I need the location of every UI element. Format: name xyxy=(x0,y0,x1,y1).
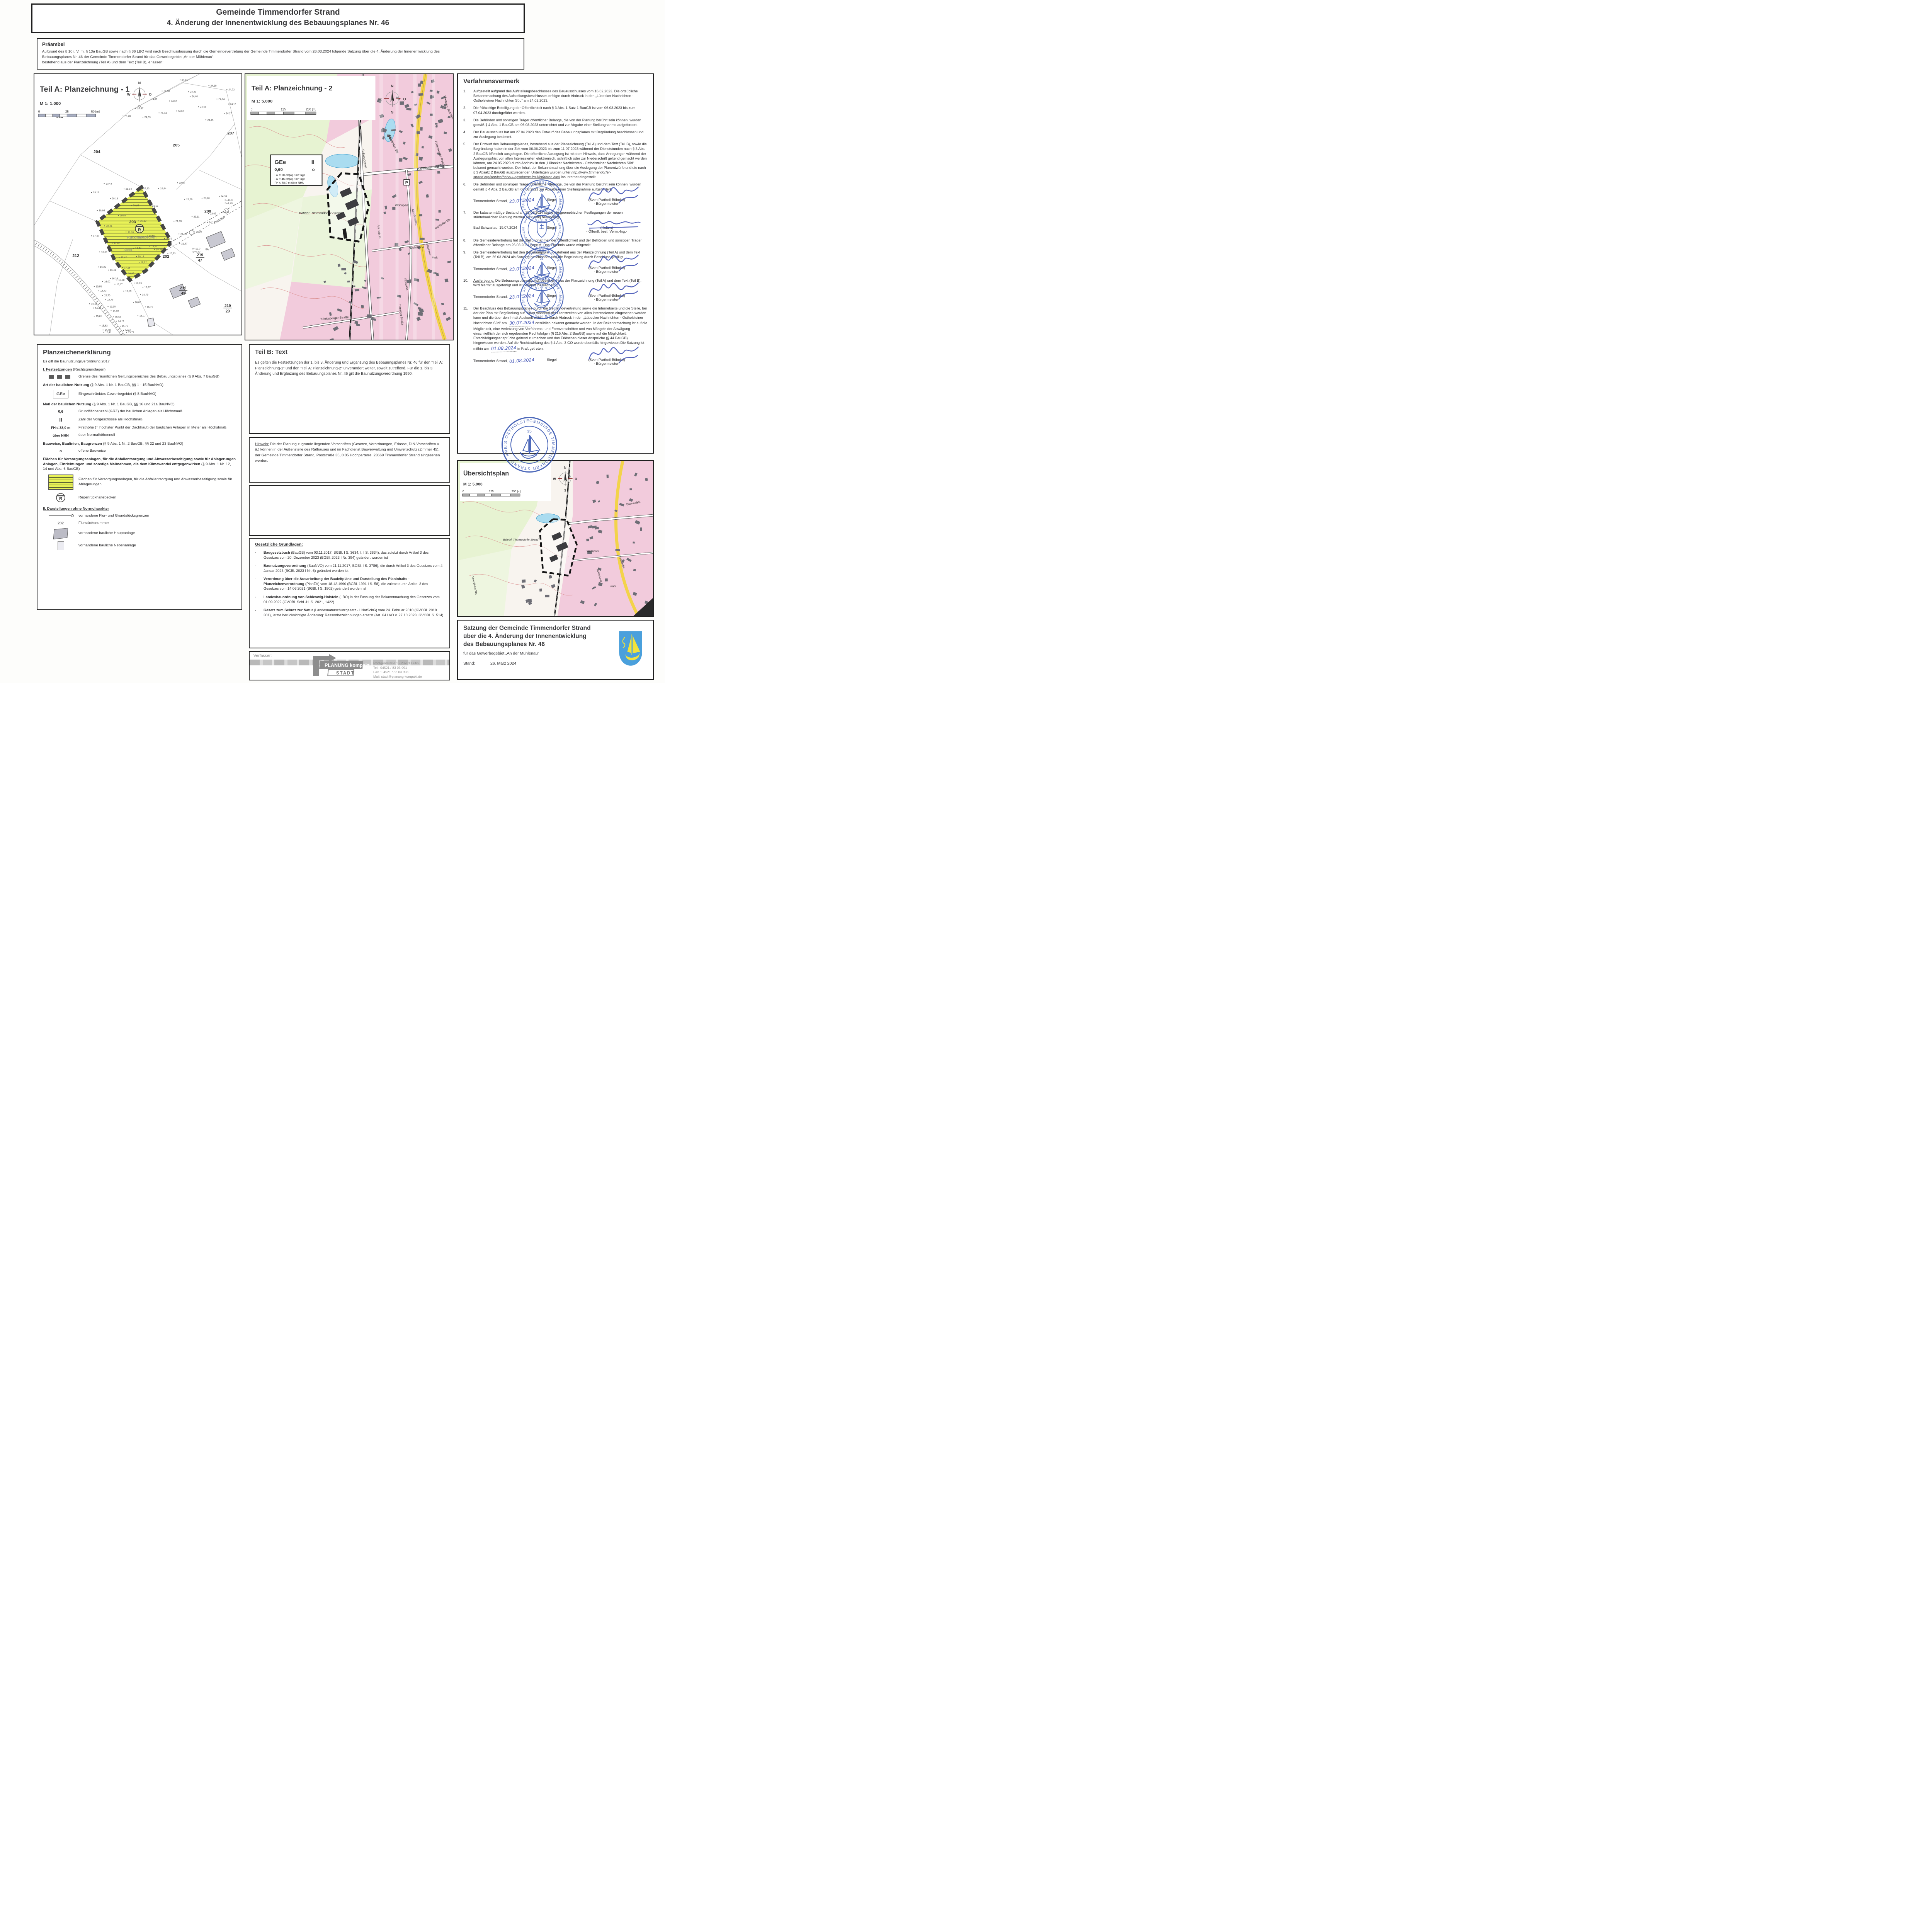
elevation-label: 20,63 xyxy=(169,252,175,255)
teilb-body: Es gelten die Festsetzungen der 1. bis 3… xyxy=(255,360,444,377)
verfahren-item-3: 3.Die Behörden und sonstigen Träger öffe… xyxy=(463,118,648,127)
elevation-dot xyxy=(169,100,170,101)
elevation-dot xyxy=(122,267,123,268)
elevation-dot xyxy=(216,99,217,99)
handwritten-date: 23.07.2024 xyxy=(509,197,535,204)
elevation-dot xyxy=(228,104,229,104)
building-footprint xyxy=(633,569,636,571)
svg-text:o: o xyxy=(312,168,315,172)
elevation-label: 20,13 xyxy=(140,220,146,223)
building-footprint xyxy=(607,474,609,478)
elevation-dot xyxy=(110,278,111,279)
building-footprint xyxy=(418,312,423,316)
elevation-label: 14,68 xyxy=(112,310,119,312)
elevation-dot xyxy=(104,225,105,226)
street-label: Park xyxy=(611,585,616,588)
mayor-name: (Sven Partheil-Böhnke) xyxy=(566,198,648,202)
building-footprint xyxy=(400,101,404,105)
svg-text:O: O xyxy=(575,478,577,481)
elevation-dot xyxy=(102,281,103,282)
elevation-dot xyxy=(124,189,124,189)
building-footprint xyxy=(545,595,549,597)
elevation-label: 23,25 xyxy=(196,231,202,234)
elevation-dot xyxy=(99,252,100,252)
elevation-dot xyxy=(123,330,124,331)
flur-line-symbol xyxy=(49,515,73,516)
elevation-label: 21,54 xyxy=(126,188,132,190)
svg-text:250 [m]: 250 [m] xyxy=(306,107,316,111)
elevation-dot xyxy=(100,325,100,326)
elevation-dot xyxy=(94,316,95,316)
svg-text:R: R xyxy=(59,497,62,501)
elevation-dot xyxy=(93,308,94,308)
building-footprint xyxy=(633,541,635,543)
elevation-label: 22,93 xyxy=(179,182,185,184)
elevation-dot xyxy=(102,295,103,296)
elevation-label: 18,41 xyxy=(106,225,112,228)
building-footprint xyxy=(640,527,642,531)
signature-row-mayor-1: Timmendorfer Strand,23.07.2024 Siegel (S… xyxy=(473,198,648,206)
building-footprint xyxy=(420,238,424,240)
elevation-label: 24,65 xyxy=(178,110,184,112)
svg-text:0: 0 xyxy=(251,107,253,111)
handwritten-date: 30.07.2024 xyxy=(509,320,535,327)
elevation-label: 23,78 xyxy=(124,115,131,117)
building-footprint xyxy=(435,219,439,221)
regenrueckhaltebecken-icon: R xyxy=(135,224,144,233)
town-seal-stamp xyxy=(500,416,558,474)
building-footprint xyxy=(418,93,423,96)
gesetzliche-grundlagen-section: Gesetzliche Grundlagen: -Baugesetzbuch (… xyxy=(249,538,450,648)
building-footprint xyxy=(420,127,423,131)
elevation-dot xyxy=(159,112,160,113)
elevation-dot xyxy=(112,243,112,243)
map1-scale: M 1: 1.000 xyxy=(40,102,61,106)
elevation-dot xyxy=(116,321,117,321)
building-footprint xyxy=(629,488,632,490)
elevation-dot xyxy=(103,330,104,330)
praeambel-section: Präambel Aufgrund des § 10 i. V. m. § 13… xyxy=(37,38,524,70)
gee-info-box: GEe II 0,60 o Lw = 60 dB(A) / m² tags Lw… xyxy=(271,155,322,186)
elevation-dot xyxy=(126,273,127,274)
legend-intro: Es gilt die Baunutzungsverordnung 2017 xyxy=(43,359,236,364)
elevation-label: 16,19 xyxy=(125,290,131,293)
svg-text:0,60: 0,60 xyxy=(274,168,282,172)
building-footprint xyxy=(441,303,444,305)
building-footprint xyxy=(445,279,449,282)
teilb-heading: Teil B: Text xyxy=(255,348,444,357)
elevation-dot xyxy=(135,108,136,109)
verfahren-item-6: 6.Die Behörden und sonstigen Träger öffe… xyxy=(463,182,648,191)
elevation-label: 24,27 xyxy=(226,112,232,115)
verfahren-item-7: 7.Der katastermäßige Bestand am 25.06.20… xyxy=(463,210,648,219)
elevation-label: 23,11 xyxy=(194,216,200,218)
plan-drawing-2: P Bahnhf. Timmendorfer Strand Schwedenwe… xyxy=(245,73,454,340)
elevation-label: 20,18 xyxy=(112,197,118,200)
svg-text:250 [m]: 250 [m] xyxy=(512,490,521,493)
elevation-dot xyxy=(221,212,222,213)
svg-text:II: II xyxy=(311,160,315,166)
legend-row-firsthoehe: FH ≤ 38,0 mFirsthöhe (= höchster Punkt d… xyxy=(43,425,236,430)
legend-section-2: II. Darstellungen ohne Normcharakter xyxy=(43,507,109,511)
legend-row-grz: 0,6Grundflächenzahl (GRZ) der baulichen … xyxy=(43,409,236,414)
legend-row-nhn: über NHNüber Normalhöhennull xyxy=(43,433,236,437)
svg-text:P: P xyxy=(405,180,408,185)
elevation-dot xyxy=(219,196,219,197)
gee-symbol: GEe xyxy=(53,390,68,398)
house-number: 8A xyxy=(206,248,209,251)
elevation-label: 14,74 xyxy=(118,320,124,323)
elevation-dot xyxy=(209,85,209,86)
building-footprint xyxy=(592,526,597,528)
elevation-label: 16,17 xyxy=(116,283,122,286)
elevation-dot xyxy=(207,222,208,223)
elevation-label: 24,39 xyxy=(221,195,227,198)
elevation-label: 16,99 xyxy=(128,272,134,275)
legend-row-bauweise: ooffene Bauweise xyxy=(43,449,236,453)
elevation-dot xyxy=(167,253,168,254)
elevation-dot xyxy=(126,332,127,333)
legend-row-grenze: Grenze des räumlichen Geltungsbereiches … xyxy=(43,374,236,379)
planung-kompakt-logo: PLANUNG kompakt STADT xyxy=(308,654,369,678)
praeambel-line1: Aufgrund des § 10 i. V. m. § 13a BauGB s… xyxy=(42,49,519,54)
elevation-label: 18,14 xyxy=(138,255,144,258)
elevation-label: 19,57 xyxy=(120,214,126,217)
elevation-label: 24,39 xyxy=(190,91,196,94)
elevation-dot xyxy=(113,316,114,317)
svg-text:Lw = 60 dB(A) / m² tags: Lw = 60 dB(A) / m² tags xyxy=(274,173,305,177)
elevation-dot xyxy=(140,294,141,295)
svg-text:R: R xyxy=(138,228,141,233)
elevation-label: 17,42 xyxy=(121,256,127,259)
stand-value: 26. März 2024 xyxy=(490,661,516,666)
elevation-dot xyxy=(147,235,148,236)
hinweis-body: Die der Planung zugrunde liegenden Vorsc… xyxy=(255,442,440,463)
legend-row-flurgrenzen: vorhandene Flur- und Grundstücksgrenzen xyxy=(43,514,236,518)
building-footprint xyxy=(539,588,542,592)
elevation-label: 15,63 xyxy=(102,325,108,327)
street-label: Wohnpark xyxy=(587,550,599,553)
station-label: Bahnhf. Timmendorfer Strand xyxy=(299,211,342,215)
verfahren-item-5: 5. Der Entwurf des Bebauungsplanes, best… xyxy=(463,142,648,179)
praeambel-heading: Präambel xyxy=(42,41,519,48)
elevation-dot xyxy=(97,210,98,211)
building-footprint xyxy=(406,108,411,110)
elevation-dot xyxy=(143,117,143,117)
verfahrensvermerk-section: Verfahrensvermerk 1.Aufgestellt aufgrund… xyxy=(457,73,654,454)
surveyor-name: (Helten) xyxy=(566,226,648,230)
elevation-label: 17,37 xyxy=(145,286,151,289)
elevation-label: 16,93 xyxy=(136,282,142,285)
sig-place: Timmendorfer Strand, xyxy=(473,199,508,203)
parcel-number: 204 xyxy=(94,150,100,154)
svg-text:0: 0 xyxy=(38,110,40,113)
verfahren-item-1: 1.Aufgestellt aufgrund des Aufstellungsb… xyxy=(463,89,648,103)
elevation-dot xyxy=(192,216,192,217)
building-footprint xyxy=(361,305,364,308)
elevation-dot xyxy=(179,243,180,244)
gesetz-item: -Verordnung über die Ausarbeitung der Ba… xyxy=(255,577,444,591)
siegel-label: Siegel xyxy=(538,226,566,230)
parcel-number: 208 xyxy=(204,209,211,214)
hauptanlage-symbol xyxy=(53,528,68,539)
svg-text:O: O xyxy=(403,97,406,101)
building-footprint xyxy=(586,539,589,541)
elevation-dot xyxy=(188,91,189,92)
elevation-label: 16,38 xyxy=(118,279,124,282)
verfahren-heading: Verfahrensvermerk xyxy=(463,78,648,85)
empty-text-box xyxy=(249,485,450,536)
handwritten-date: 23.07.2024 xyxy=(509,293,535,300)
building-footprint xyxy=(437,90,440,94)
verfasser-mail[interactable]: Mail: stadt@planung-kompakt.de xyxy=(373,675,422,679)
handwritten-date: 01.08.2024 xyxy=(509,357,535,364)
verfasser-section: Verfasser: PLANUNG kompakt STADT Röntgen… xyxy=(249,651,450,680)
elevation-dot xyxy=(98,267,99,267)
elevation-label: 15,77 xyxy=(128,331,134,334)
signature-row-surveyor: Bad Schwartau, 19.07.2024 Siegel (Helten… xyxy=(473,226,648,233)
elevation-dot xyxy=(151,99,151,99)
mayor-role: - Bürgermeister- xyxy=(566,202,648,206)
elevation-dot xyxy=(133,302,134,303)
building-footprint xyxy=(417,131,420,134)
parcel-fraction-denominator: 49 xyxy=(181,292,186,296)
verfahren-item-8: 8.Die Gemeindevertretung hat die Stellun… xyxy=(463,238,648,247)
elevation-dot xyxy=(119,257,119,258)
elevation-label: 21,99 xyxy=(175,220,182,223)
building-footprint xyxy=(422,146,424,149)
praeambel-line2: Bebauungsplanes Nr. 46 der Gemeinde Timm… xyxy=(42,54,519,60)
elevation-dot xyxy=(179,233,179,234)
elevation-label: 20,86 xyxy=(133,204,139,207)
elevation-label: 22,44 xyxy=(160,187,167,190)
elevation-label: 16,89 xyxy=(101,251,107,253)
elevation-label: 16,41 xyxy=(110,269,116,272)
handwritten-date: 23.07.2024 xyxy=(509,265,535,272)
elevation-label: 18,04 xyxy=(128,231,134,234)
elevation-label: 24,56 xyxy=(200,105,206,108)
elevation-dot xyxy=(194,231,195,232)
elevation-label: 24,53 xyxy=(145,116,151,119)
verfahren-item-2: 2.Die frühzeitige Beteiligung der Öffent… xyxy=(463,105,648,115)
gesetz-item: -Gesetz zum Schutz zur Natur (Landesnatu… xyxy=(255,608,444,617)
document-title-box: Gemeinde Timmendorfer Strand 4. Änderung… xyxy=(31,3,525,33)
elevation-dot xyxy=(111,310,111,311)
verfahren-item-11: 11. Der Beschluss des Bebauungsplanes du… xyxy=(463,306,648,352)
coat-of-arms xyxy=(618,630,643,667)
building-footprint xyxy=(435,123,437,125)
elevation-label: 23,90 xyxy=(204,197,210,200)
elevation-label: 19,66 xyxy=(149,235,155,238)
elevation-label: 21,55 xyxy=(152,205,158,207)
verfahren-item-4: 4.Der Bauausschuss hat am 27.04.2023 den… xyxy=(463,130,648,139)
elevation-dot xyxy=(154,249,155,250)
elevation-dot xyxy=(176,111,177,111)
legend-row-regenbecken: R Regenrückhaltebecken xyxy=(43,493,236,503)
elevation-label: 22,13 xyxy=(143,187,150,190)
elevation-dot xyxy=(158,188,159,189)
elevation-label: 16,28 xyxy=(112,277,118,280)
svg-text:FH ≤ 38,0 m über NHN: FH ≤ 38,0 m über NHN xyxy=(274,181,304,184)
street-label: Bahnhf. Timmendorfer Strand xyxy=(503,539,539,541)
elevation-label: 23,09 xyxy=(186,198,192,201)
parcel-fraction-numerator: 219 xyxy=(180,286,187,291)
elevation-label: 14,76 xyxy=(107,299,114,301)
svg-text:S: S xyxy=(138,104,141,108)
building-footprint xyxy=(367,315,372,318)
elevation-label: 24,12 xyxy=(209,221,215,224)
legend-row-hauptanlage: vorhandene bauliche Hauptanlage xyxy=(43,529,236,539)
elevation-dot xyxy=(116,280,117,281)
satzung-section: Satzung der Gemeinde Timmendorfer Strand… xyxy=(457,620,654,680)
elevation-label: 19,33 xyxy=(156,248,162,251)
elevation-label: 21,93 xyxy=(180,233,187,236)
legend-row-nebenanlage: vorhandene bauliche Nebenanlage xyxy=(43,541,236,550)
svg-text:25: 25 xyxy=(65,110,69,113)
legend-row-flurnummer: 202Flurstücksnummer xyxy=(43,521,236,526)
elevation-label: 14,73 xyxy=(100,290,107,293)
elevation-label: 24,15 xyxy=(230,103,236,106)
plan-drawing-2-map: P Bahnhf. Timmendorfer Strand Schwedenwe… xyxy=(245,74,453,340)
area-sublabel: Acker xyxy=(124,248,133,252)
building-footprint xyxy=(522,580,526,583)
building-footprint xyxy=(341,268,346,270)
surveyor-role: - Öffentl. best. Verm.-Ing.- xyxy=(566,230,648,233)
elevation-label: 21,97 xyxy=(181,242,187,245)
elevation-label: 19,27 xyxy=(151,245,158,248)
gesetz-item: -Landesbauordnung von Schleswig-Holstein… xyxy=(255,595,444,604)
map2-scale: M 1: 5.000 xyxy=(252,99,272,104)
svg-text:N: N xyxy=(564,466,566,469)
elevation-dot xyxy=(173,221,174,221)
map2-title: Teil A: Planzeichnung - 2 xyxy=(252,84,332,92)
elevation-label: 18,86 xyxy=(99,209,105,212)
building-footprint xyxy=(439,210,441,213)
elevation-label: 17,47 xyxy=(93,235,99,238)
legend-section: Planzeichenerklärung Es gilt die Baunutz… xyxy=(37,344,242,610)
elevation-label: 15,55 xyxy=(110,305,116,308)
legend-row-versorgung: Flächen für Versorgungsanlagen, für die … xyxy=(43,474,236,490)
elevation-dot xyxy=(138,220,139,221)
document-page: GEMEINDE TIMMENDORFER STRAND · KREIS OST… xyxy=(0,0,665,683)
signature-row-mayor-2: Timmendorfer Strand,23.07.2024 Siegel (S… xyxy=(473,266,648,274)
elevation-dot xyxy=(226,89,227,90)
svg-text:W: W xyxy=(127,93,131,97)
elevation-label: 15,70 xyxy=(104,294,111,297)
elevation-dot xyxy=(224,113,224,114)
svg-text:GEe: GEe xyxy=(274,160,286,166)
parcel-fraction-numerator: 219 xyxy=(224,304,231,308)
legend-row-gee: GEe Eingeschränktes Gewerbegebiet (§ 8 B… xyxy=(43,390,236,398)
gesetz-item: -Baunutzungsverordnung (BauNVO) vom 21.1… xyxy=(255,563,444,573)
parcel-number: 205 xyxy=(173,143,180,148)
elevation-label: 15,66 xyxy=(91,303,97,305)
svg-text:W: W xyxy=(553,478,556,481)
parcel-number: 202 xyxy=(163,255,170,259)
elevation-dot xyxy=(105,299,106,300)
elevation-dot xyxy=(164,238,165,239)
elevation-label: 17,18 xyxy=(124,267,130,269)
elevation-dot xyxy=(94,286,95,287)
signature-row-mayor-4: Timmendorfer Strand,01.08.2024 Siegel (S… xyxy=(473,358,648,366)
elevation-label: 18,02 xyxy=(141,261,147,264)
elevation-label: 19,11 xyxy=(93,191,99,194)
elevation-dot xyxy=(150,246,150,247)
building-footprint xyxy=(419,214,422,216)
elevation-dot xyxy=(180,80,180,80)
elevation-label: 15,76 xyxy=(122,325,128,328)
elevation-label: 24,40 xyxy=(192,95,198,98)
svg-text:125: 125 xyxy=(489,490,493,493)
parcel-fraction-denominator: 23 xyxy=(226,309,230,313)
elevation-dot xyxy=(107,306,108,307)
elevation-dot xyxy=(134,282,134,283)
building-footprint xyxy=(338,264,340,267)
plan-drawing-1-map: R Rückhaltebecken Acker Knick/Wall K=16,… xyxy=(34,74,241,335)
sig-place-surveyor: Bad Schwartau, 19.07.2024 xyxy=(473,226,538,230)
elevation-dot xyxy=(138,315,138,316)
elevation-label: 15,95 xyxy=(96,286,102,288)
svg-text:N: N xyxy=(138,81,141,85)
elevation-dot xyxy=(104,183,105,184)
elevation-label: 24,58 xyxy=(164,90,170,93)
parcel-number: 212 xyxy=(73,254,80,258)
elevation-label: 16,07 xyxy=(139,315,146,317)
versorgung-swatch xyxy=(48,474,73,490)
elevation-dot xyxy=(114,284,115,284)
elevation-dot xyxy=(133,248,134,248)
parcel-fraction-numerator: 219 xyxy=(197,253,204,257)
s1-label: S=1,20 xyxy=(224,202,233,205)
elevation-label: 24,24 xyxy=(218,98,224,101)
elevation-dot xyxy=(131,205,132,206)
elevation-dot xyxy=(162,90,162,91)
elevation-dot xyxy=(108,270,109,270)
svg-text:Lw = 45 dB(A) / m² tags: Lw = 45 dB(A) / m² tags xyxy=(274,177,305,180)
elevation-label: 24,15 xyxy=(182,79,188,82)
uebersichtsplan-map: Bahnhf. Timmendorfer StrandWohnparkParkB… xyxy=(458,461,653,616)
verfahren-item-10: 10. Ausfertigung: Die Bebauungsplansatzu… xyxy=(463,278,648,287)
elevation-label: 15,57 xyxy=(115,316,121,318)
elevation-dot xyxy=(118,215,119,216)
hinweis-section: Hinweis: Die der Planung zugrunde liegen… xyxy=(249,437,450,483)
elevation-label: 24,66 xyxy=(171,100,177,103)
elevation-dot xyxy=(136,256,137,257)
plan-drawing-1: R Rückhaltebecken Acker Knick/Wall K=16,… xyxy=(34,73,242,335)
building-footprint xyxy=(418,83,422,87)
legend-heading: Planzeichenerklärung xyxy=(43,349,236,356)
elevation-dot xyxy=(89,303,90,304)
svg-text:50 [m]: 50 [m] xyxy=(91,110,100,113)
k1-label: K=16,0 xyxy=(224,199,233,202)
elevation-label: 24,22 xyxy=(228,88,235,91)
teil-b-section: Teil B: Text Es gelten die Festsetzungen… xyxy=(249,344,450,434)
elevation-label: 14,48 xyxy=(95,307,101,310)
elevation-dot xyxy=(177,182,178,183)
building-footprint xyxy=(347,281,350,282)
siegel-label: Siegel xyxy=(538,198,566,202)
parcel-number: 207 xyxy=(228,131,235,136)
elevation-label: 24,74 xyxy=(161,112,167,114)
elevation-dot xyxy=(104,332,104,333)
elevation-dot xyxy=(99,290,99,291)
signature-row-mayor-3: Timmendorfer Strand,23.07.2024 Siegel (S… xyxy=(473,294,648,301)
elevation-label: 20,45 xyxy=(166,237,172,240)
elevation-dot xyxy=(184,199,185,200)
map1-title: Teil A: Planzeichnung - 1 xyxy=(40,85,130,94)
stand-label: Stand: xyxy=(463,661,490,666)
building-footprint xyxy=(605,578,608,582)
